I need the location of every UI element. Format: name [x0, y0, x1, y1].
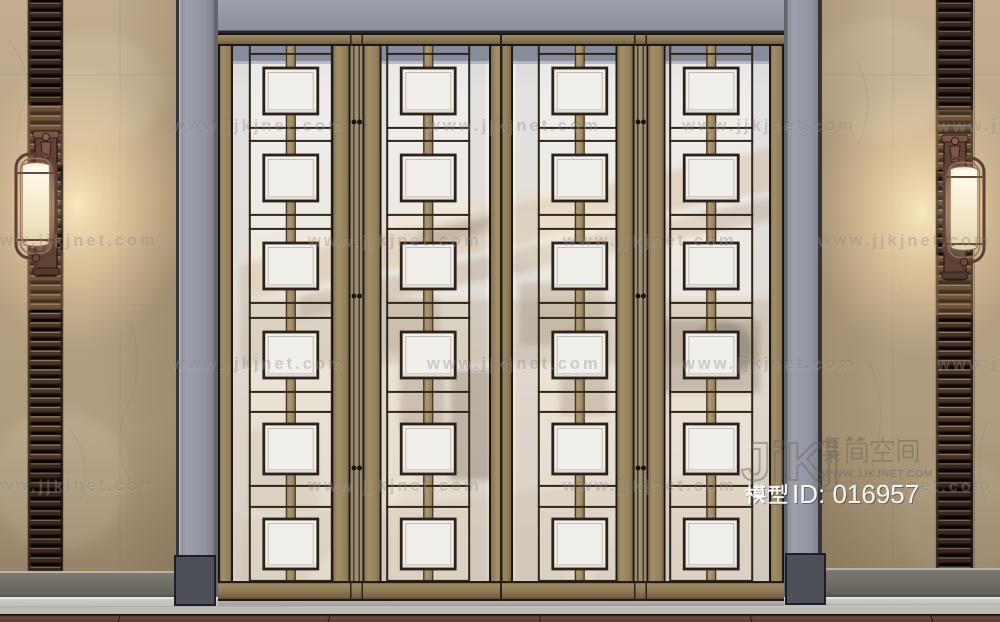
svg-text:www.jjkjnet.com: www.jjkjnet.com — [0, 232, 158, 250]
svg-text:www.jjkjnet.com: www.jjkjnet.com — [681, 355, 856, 373]
svg-text:ID: 016957: ID: 016957 — [792, 479, 919, 509]
svg-text:www.jjkjnet.com: www.jjkjnet.com — [562, 477, 737, 495]
svg-text:www.jjkjnet.com: www.jjkjnet.com — [426, 355, 601, 373]
svg-text:www.jjkjnet.com: www.jjkjnet.com — [307, 232, 482, 250]
svg-text:www.jjkjnet.com: www.jjkjnet.com — [681, 117, 856, 135]
svg-text:www.jjkjnet.com: www.jjkjnet.com — [936, 355, 1000, 373]
svg-text:www.jjkjnet.com: www.jjkjnet.com — [0, 477, 158, 495]
svg-text:www.jjkjnet.com: www.jjkjnet.com — [171, 117, 346, 135]
svg-text:www.jjkjnet.com: www.jjkjnet.com — [936, 117, 1000, 135]
svg-text:www.jjkjnet.com: www.jjkjnet.com — [171, 355, 346, 373]
svg-text:www.jjkjnet.com: www.jjkjnet.com — [307, 477, 482, 495]
svg-text:www.jjkjnet.com: www.jjkjnet.com — [817, 232, 992, 250]
svg-text:www.jjkjnet.com: www.jjkjnet.com — [426, 117, 601, 135]
svg-text:www.jjkjnet.com: www.jjkjnet.com — [562, 232, 737, 250]
